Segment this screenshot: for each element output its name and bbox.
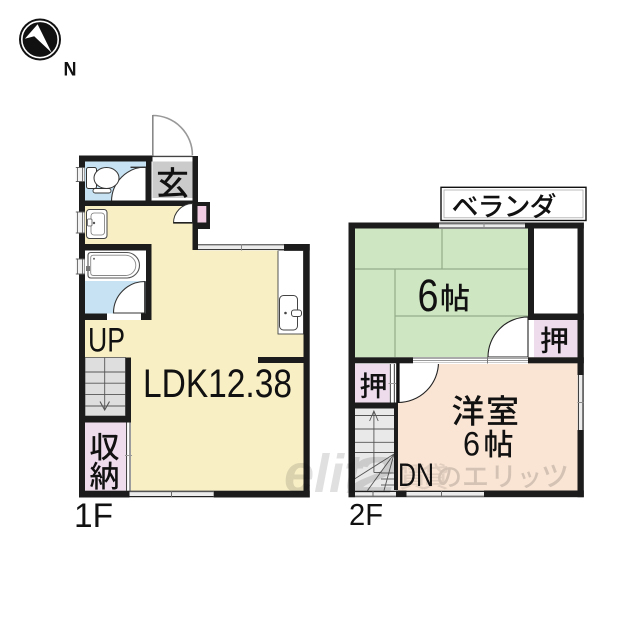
svg-text:LDK12.38: LDK12.38 — [143, 362, 292, 406]
svg-text:2: 2 — [346, 447, 398, 505]
svg-text:1F: 1F — [74, 497, 113, 535]
svg-text:N: N — [64, 59, 77, 81]
svg-text:UP: UP — [88, 322, 125, 360]
svg-text:6: 6 — [463, 425, 480, 463]
svg-text:6: 6 — [418, 270, 439, 321]
